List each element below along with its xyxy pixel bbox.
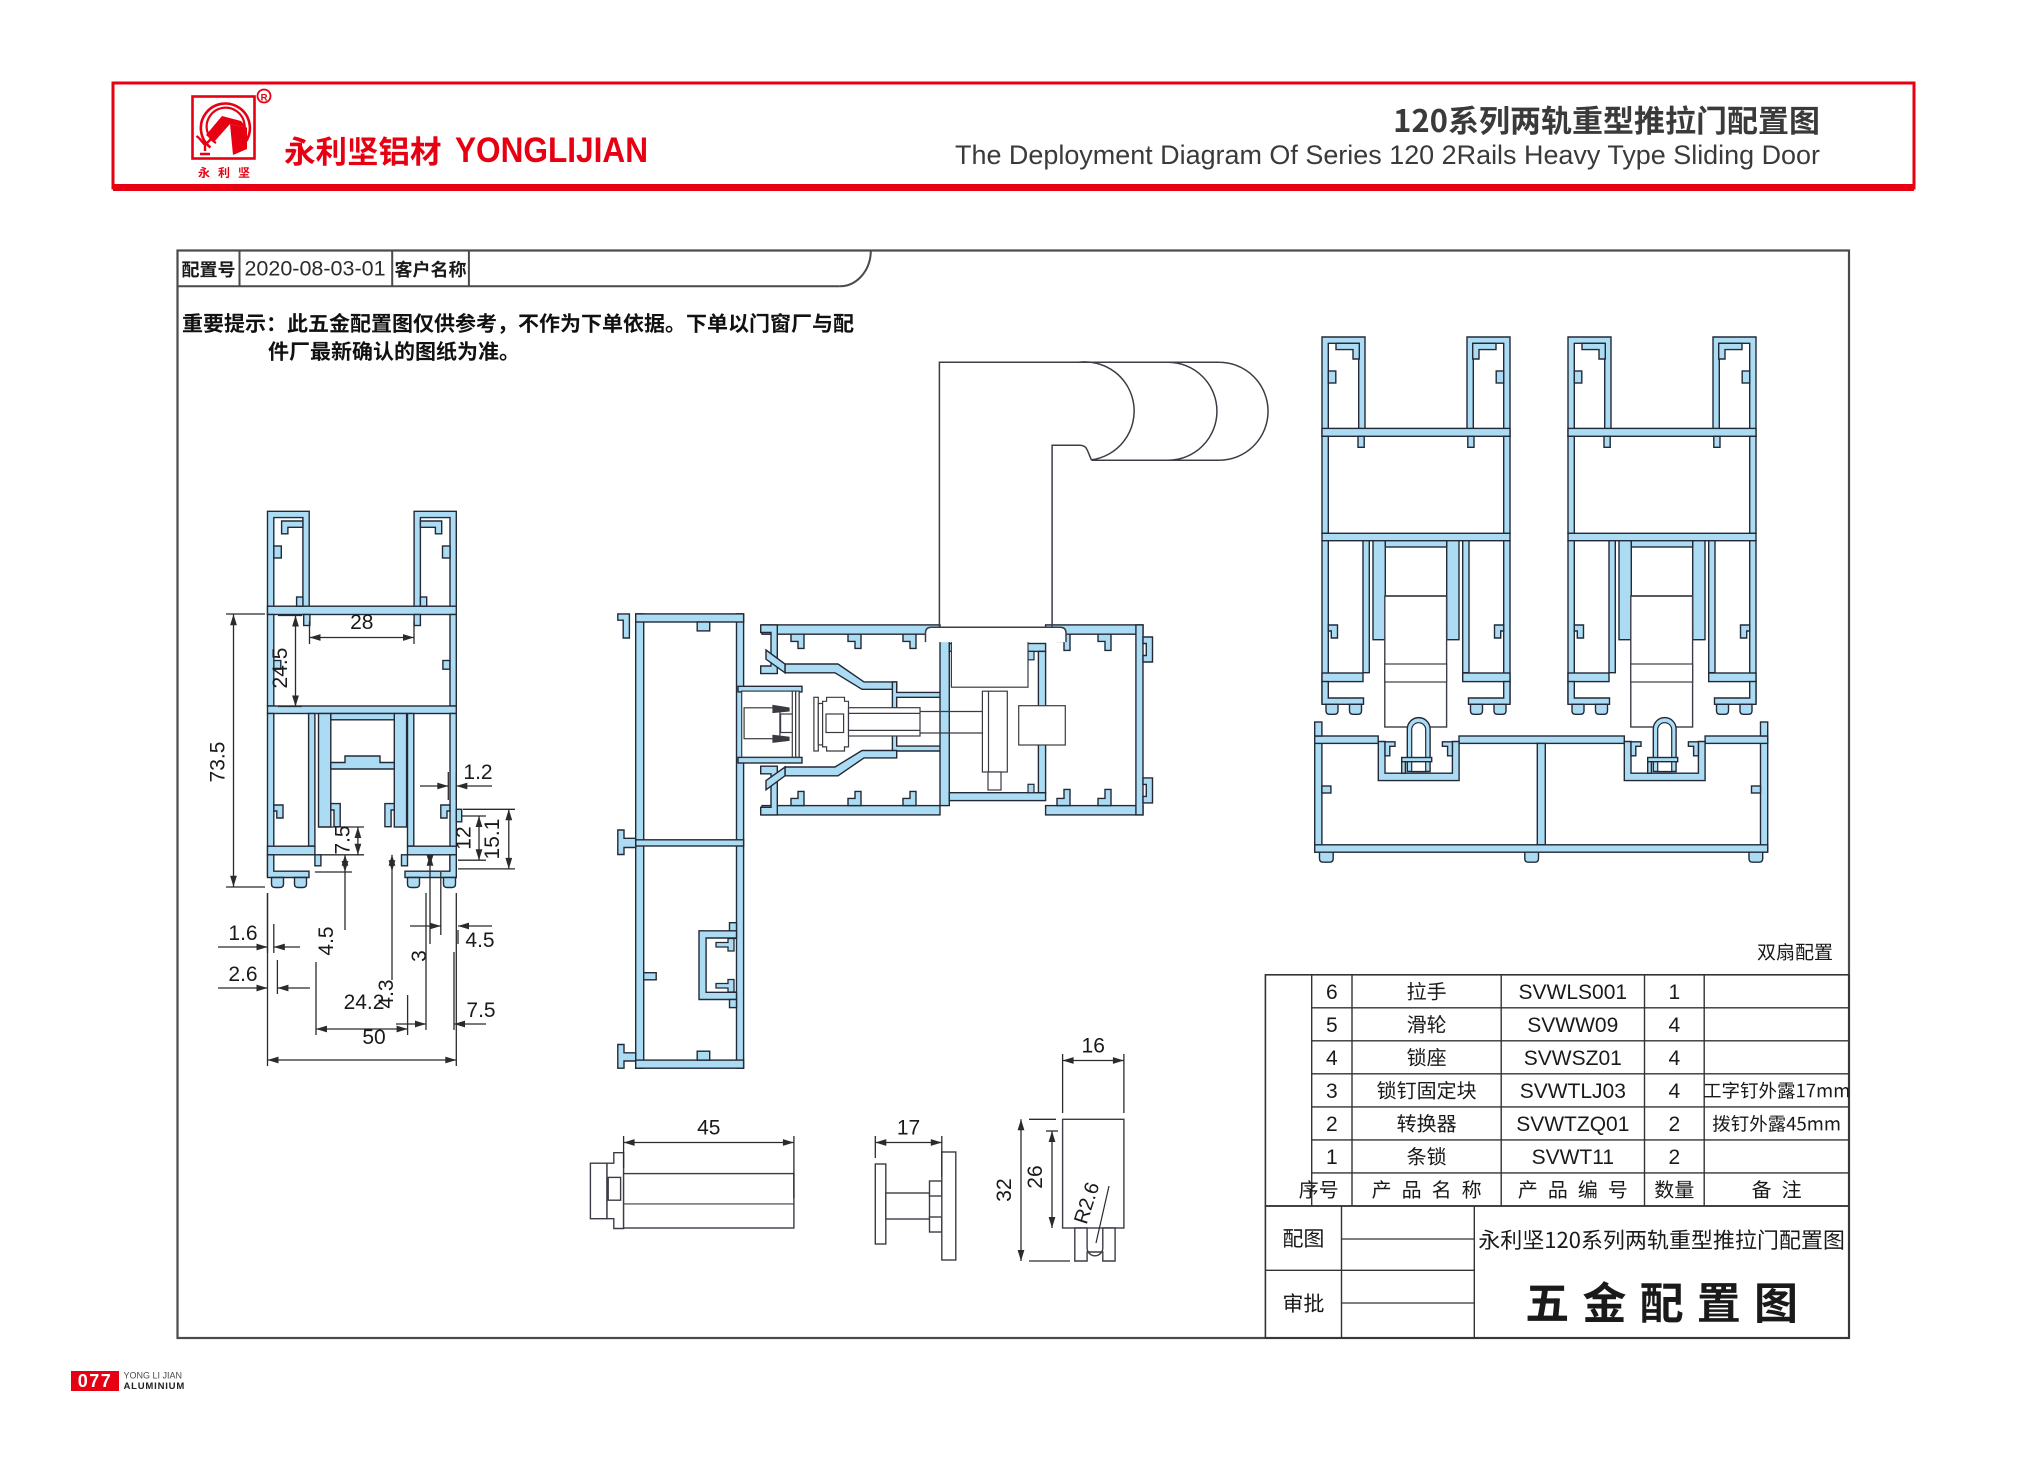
svg-text:4.5: 4.5 <box>315 926 338 955</box>
svg-text:7.5: 7.5 <box>332 825 355 854</box>
svg-text:YONGLIJIAN: YONGLIJIAN <box>455 131 648 170</box>
svg-text:7.5: 7.5 <box>466 999 495 1022</box>
svg-text:2: 2 <box>1668 1113 1680 1136</box>
svg-text:SVWT11: SVWT11 <box>1532 1146 1614 1169</box>
svg-text:SVWLS001: SVWLS001 <box>1519 981 1628 1004</box>
svg-text:2: 2 <box>1668 1146 1680 1169</box>
svg-text:24.5: 24.5 <box>269 648 292 689</box>
svg-text:45: 45 <box>697 1117 720 1140</box>
svg-text:1: 1 <box>1326 1146 1338 1169</box>
svg-text:SVWSZ01: SVWSZ01 <box>1524 1047 1622 1070</box>
svg-text:3: 3 <box>408 950 431 962</box>
svg-text:1.2: 1.2 <box>463 761 492 784</box>
svg-text:1: 1 <box>1668 981 1680 1004</box>
svg-text:26: 26 <box>1024 1165 1047 1188</box>
svg-text:12: 12 <box>453 826 476 849</box>
svg-text:16: 16 <box>1082 1035 1105 1058</box>
svg-text:1.6: 1.6 <box>228 922 257 945</box>
svg-text:4: 4 <box>1668 1014 1680 1037</box>
svg-text:4: 4 <box>1668 1080 1680 1103</box>
svg-text:4: 4 <box>1326 1047 1338 1070</box>
svg-text:R: R <box>261 93 268 104</box>
svg-text:SVWW09: SVWW09 <box>1527 1014 1618 1037</box>
svg-text:YONG LI JIAN: YONG LI JIAN <box>124 1371 183 1381</box>
svg-text:4: 4 <box>1668 1047 1680 1070</box>
svg-text:ALUMINIUM: ALUMINIUM <box>124 1381 186 1392</box>
svg-text:077: 077 <box>78 1371 113 1391</box>
svg-text:17: 17 <box>897 1117 920 1140</box>
svg-text:24.2: 24.2 <box>344 991 385 1014</box>
svg-text:5: 5 <box>1326 1014 1338 1037</box>
svg-text:73.5: 73.5 <box>207 742 230 783</box>
svg-text:32: 32 <box>993 1178 1016 1201</box>
svg-text:4.5: 4.5 <box>465 929 494 952</box>
svg-text:SVWTLJ03: SVWTLJ03 <box>1520 1080 1626 1103</box>
svg-text:2: 2 <box>1326 1113 1338 1136</box>
svg-text:The Deployment Diagram Of Seri: The Deployment Diagram Of Series 120 2Ra… <box>955 140 1820 170</box>
svg-text:6: 6 <box>1326 981 1338 1004</box>
svg-text:SVWTZQ01: SVWTZQ01 <box>1516 1113 1629 1136</box>
svg-text:28: 28 <box>350 611 373 634</box>
svg-text:2.6: 2.6 <box>228 963 257 986</box>
svg-text:50: 50 <box>362 1026 385 1049</box>
svg-text:2020-08-03-01: 2020-08-03-01 <box>244 257 385 281</box>
svg-text:15.1: 15.1 <box>481 819 504 860</box>
svg-text:3: 3 <box>1326 1080 1338 1103</box>
